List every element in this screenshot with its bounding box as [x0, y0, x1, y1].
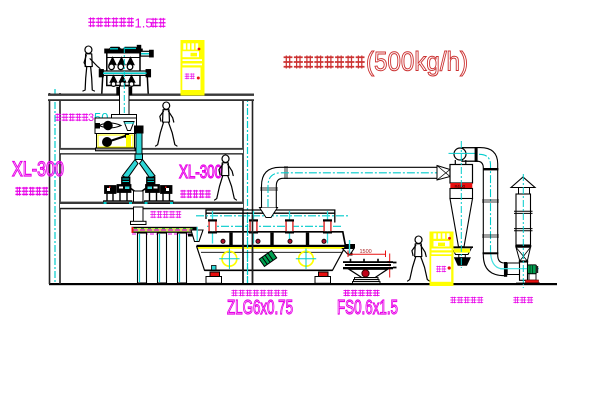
svg-text:XL-300: XL-300 [12, 158, 64, 181]
svg-text:1500: 1500 [360, 249, 372, 255]
svg-text:1.5: 1.5 [135, 16, 153, 31]
svg-text:XL-300: XL-300 [179, 162, 222, 182]
svg-text:(500kg/h): (500kg/h) [366, 47, 468, 77]
svg-text:FS0.6x1.5: FS0.6x1.5 [337, 297, 398, 319]
svg-text:ZLG6x0.75: ZLG6x0.75 [227, 297, 293, 319]
